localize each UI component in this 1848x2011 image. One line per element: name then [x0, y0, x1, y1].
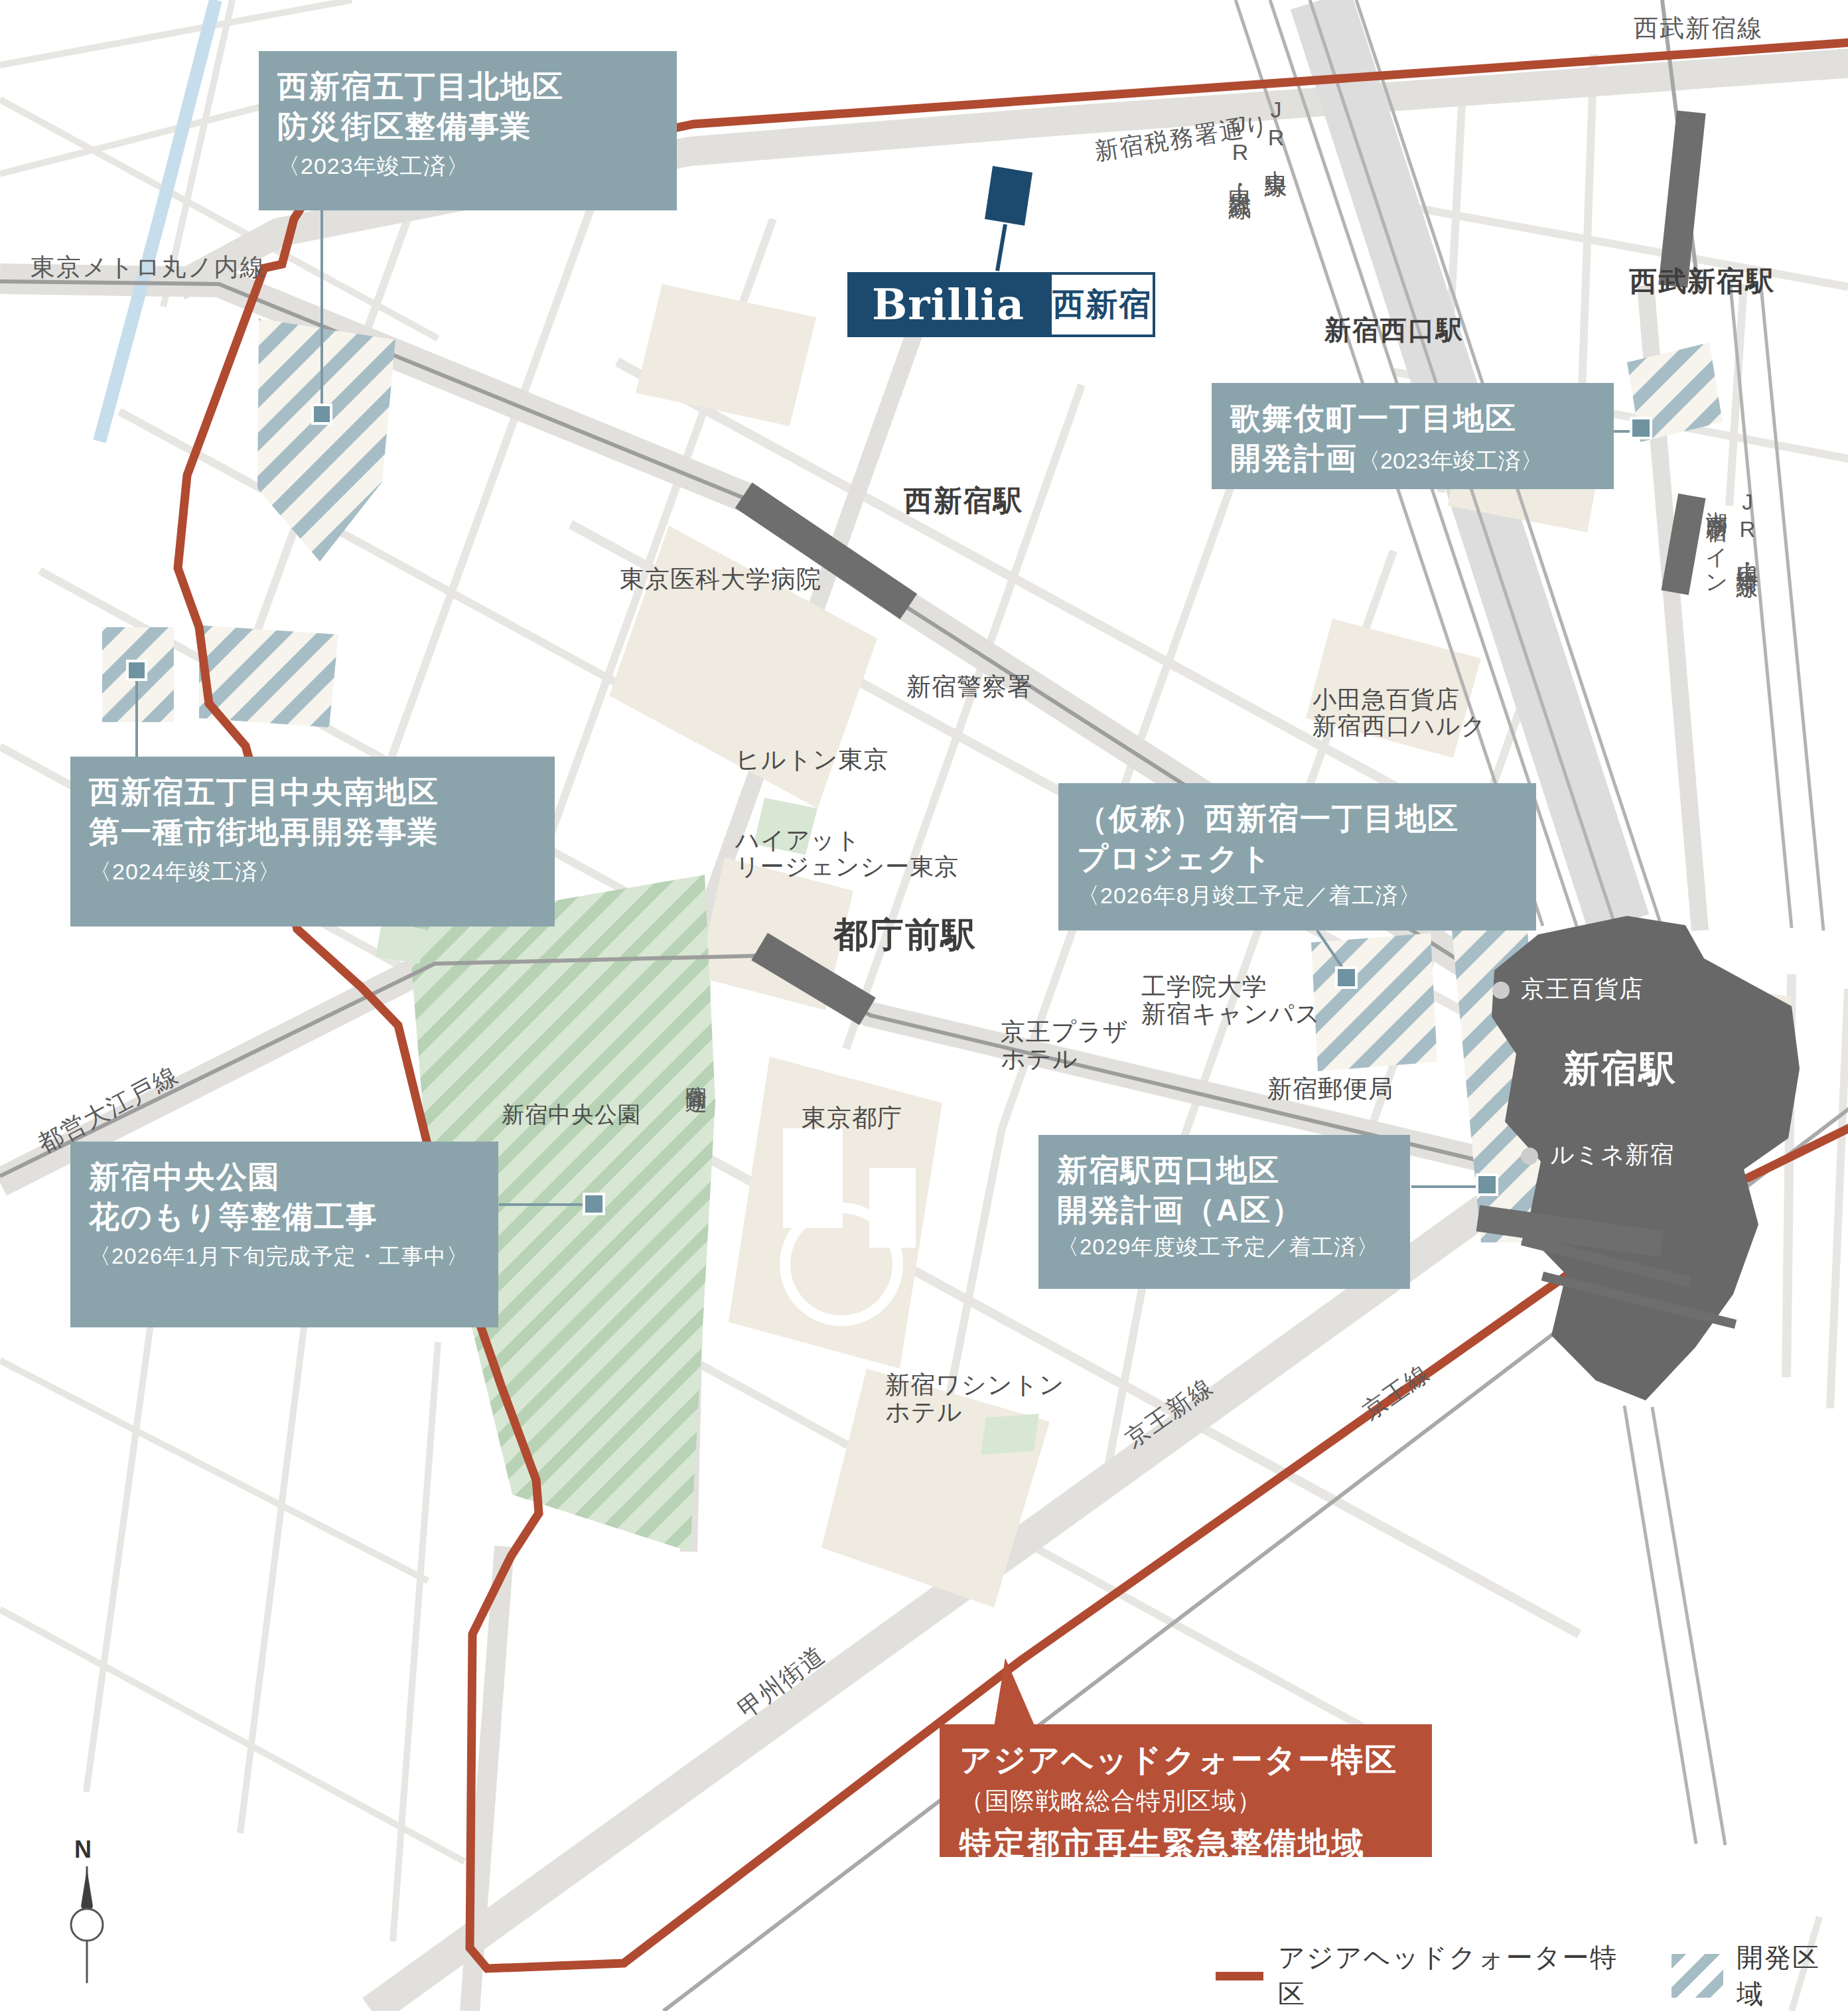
marker-chuo-park	[584, 1194, 604, 1214]
marker-west-exit	[1477, 1175, 1497, 1195]
poi-chuo-park: 新宿中央公園	[502, 1102, 641, 1127]
zone-nishi-1chome	[1311, 933, 1437, 1071]
zone-kita	[257, 319, 395, 561]
river	[100, 0, 216, 441]
development-area-swatch	[1671, 1954, 1723, 1998]
shonan-shinjuku-line-label: 湘南新宿ライン	[1701, 494, 1731, 587]
poi-kogakuin: 工学院大学新宿キャンパス	[1141, 973, 1320, 1028]
project-label-kita: 西新宿五丁目北地区 防災街区整備事業 〈2023年竣工済〉	[259, 51, 677, 210]
shinjuku-station-label: 新宿駅	[1563, 1045, 1677, 1094]
project-label-west-exit: 新宿駅西口地区 開発計画（A区） 〈2029年度竣工予定／着工済〉	[1038, 1135, 1410, 1289]
seibu-shinjuku-station-label: 西武新宿駅	[1629, 263, 1775, 300]
poi-post-office: 新宿郵便局	[1267, 1075, 1393, 1102]
legend-development-label: 開発区域	[1737, 1939, 1848, 2011]
marker-chuo-minami	[127, 661, 146, 680]
jr-chuo-line-label: JR中央線	[1261, 97, 1291, 161]
poi-med-univ: 東京医科大学病院	[620, 565, 821, 593]
boundary-line-swatch	[1216, 1972, 1263, 1980]
brillia-flag-icon	[985, 166, 1032, 271]
poi-keio-dept: 京王百貨店	[1521, 976, 1644, 1002]
poi-hilton: ヒルトン東京	[735, 746, 888, 773]
brillia-wordmark: Brillia	[847, 272, 1049, 337]
compass-north-label: N	[74, 1836, 92, 1864]
marker-nishi-1chome	[1336, 968, 1356, 988]
map-legend: アジアヘッドクォーター特区 開発区域	[1216, 1939, 1848, 2011]
jr-yamanote-saikyo-label: JR山手線・埼京線・	[1732, 490, 1762, 565]
legend-boundary-label: アジアヘッドクォーター特区	[1278, 1939, 1646, 2011]
poi-lumine: ルミネ新宿	[1550, 1142, 1675, 1168]
brillia-logo: Brillia 西新宿	[847, 272, 1155, 337]
koen-dori-label: 公園通り	[681, 1069, 711, 1104]
marker-kita	[313, 405, 331, 423]
marker-kabukicho	[1631, 418, 1651, 438]
shinjuku-west-station-label: 新宿西口駅	[1324, 312, 1464, 348]
poi-keio-plaza: 京王プラザホテル	[1001, 1018, 1129, 1073]
development-map: 東京メトロ丸ノ内線 新宿税務署通り 西武新宿線 西武新宿駅 JR中央線 JR中央…	[0, 0, 1848, 2011]
poi-washington: 新宿ワシントンホテル	[885, 1371, 1064, 1426]
poi-police: 新宿警察署	[906, 673, 1032, 700]
nishi-shinjuku-station-label: 西新宿駅	[904, 482, 1023, 520]
special-zone-box: アジアヘッドクォーター特区 （国際戦略総合特別区域） 特定都市再生緊急整備地域	[940, 1724, 1432, 1857]
compass-icon	[71, 1866, 103, 1983]
lumine-dot	[1521, 1148, 1538, 1165]
tochomae-station-label: 都庁前駅	[833, 912, 977, 958]
brillia-area-badge: 西新宿	[1049, 272, 1155, 337]
project-label-kabukicho: 歌舞伎町一丁目地区 開発計画〈2023年竣工済〉	[1212, 383, 1614, 489]
jr-chuo-sobu-line-label: JR中央・総武線	[1225, 112, 1255, 183]
seibu-line-label: 西武新宿線	[1634, 12, 1763, 45]
project-label-chuo-park: 新宿中央公園 花のもり等整備工事 〈2026年1月下旬完成予定・工事中〉	[70, 1142, 498, 1327]
project-label-chuo-minami: 西新宿五丁目中央南地区 第一種市街地再開発事業 〈2024年竣工済〉	[70, 757, 555, 927]
poi-hyatt: ハイアットリージェンシー東京	[735, 827, 959, 881]
project-label-nishi-1chome: （仮称）西新宿一丁目地区 プロジェクト 〈2026年8月竣工予定／着工済〉	[1058, 783, 1536, 931]
poi-tocho: 東京都庁	[802, 1104, 902, 1132]
keio-dept-dot	[1492, 982, 1510, 999]
poi-odakyu: 小田急百貨店新宿西口ハルク	[1313, 686, 1486, 740]
marunouchi-line-label: 東京メトロ丸ノ内線	[31, 251, 265, 284]
